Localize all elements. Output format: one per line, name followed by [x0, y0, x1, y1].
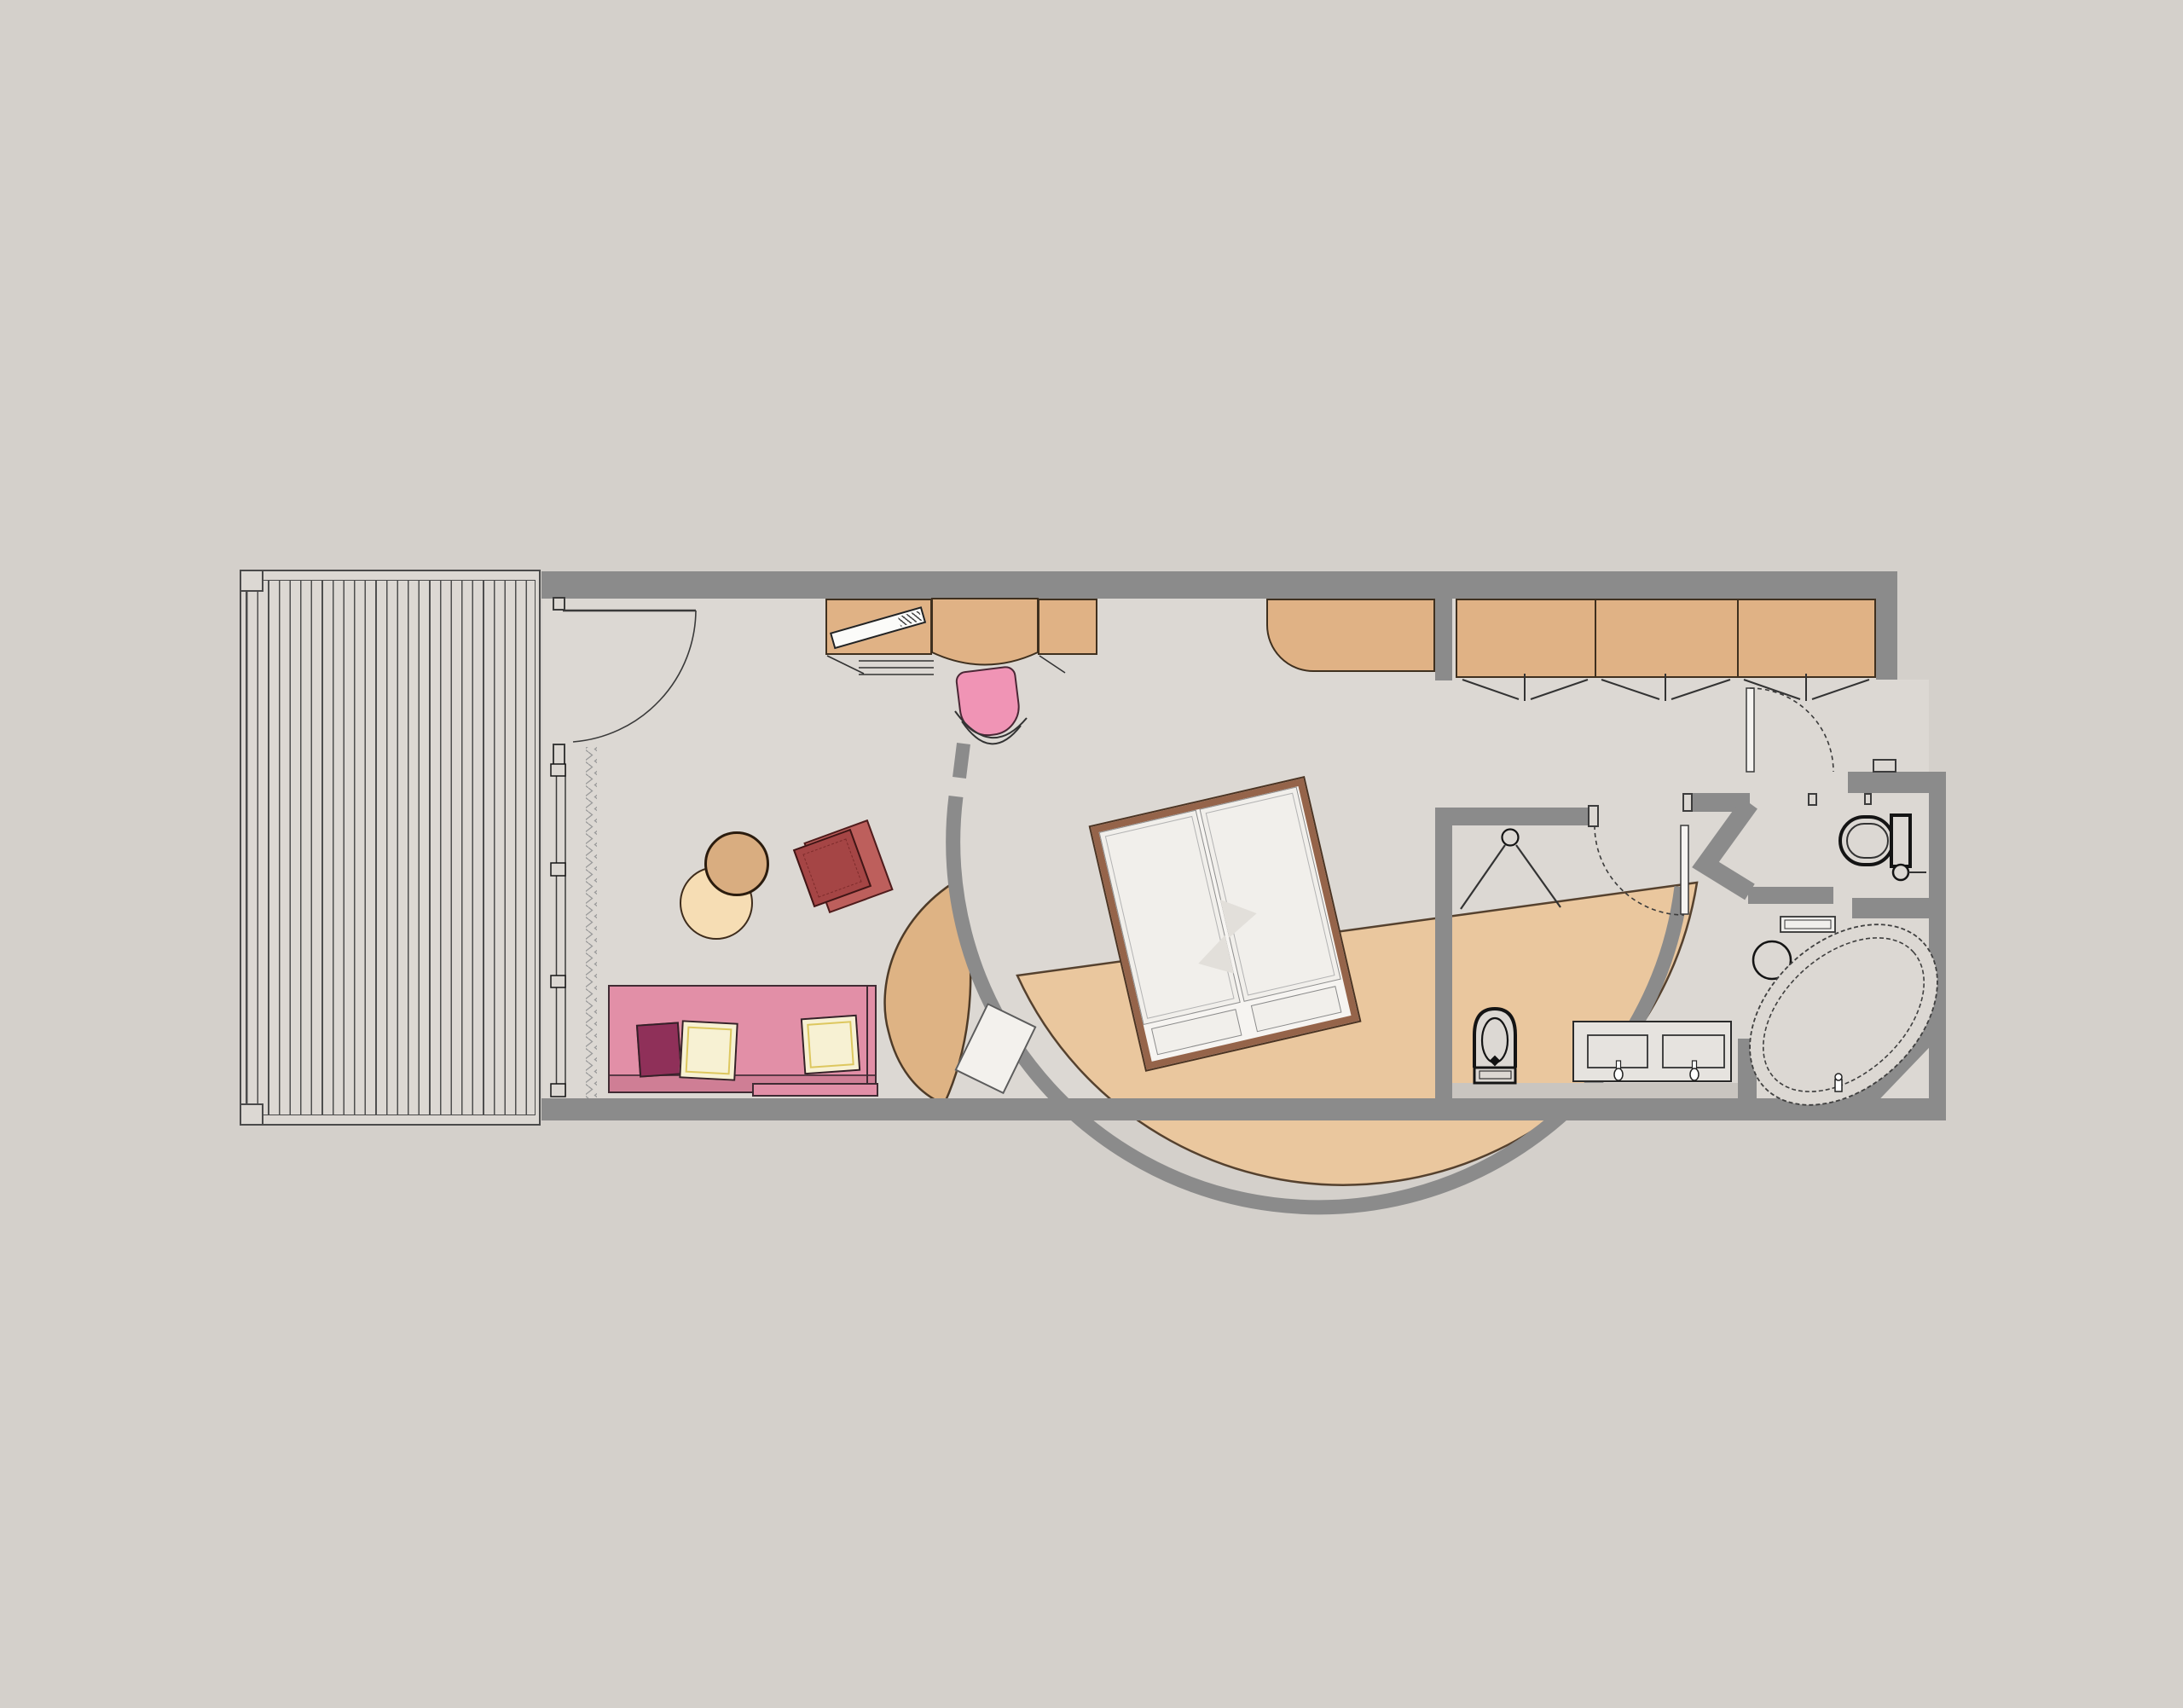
entry-jamb-bottom: [553, 744, 565, 766]
terrace-deck: [246, 580, 536, 1115]
wardrobe-divider-1: [1595, 600, 1596, 676]
cushion-cream-2: [801, 1015, 860, 1074]
floor-plan-canvas: [0, 0, 2183, 1708]
wall-top: [541, 571, 1897, 599]
wall-wc-top: [1848, 772, 1929, 793]
wall-lobby: [1693, 793, 1750, 812]
bath-door-jamb: [1588, 805, 1599, 827]
wall-right: [1929, 772, 1946, 1120]
wall-right-upper: [1876, 571, 1897, 680]
sofa-extension: [752, 1083, 878, 1097]
wc-wall-tick-2: [1864, 793, 1872, 805]
deck-post-top-left: [240, 570, 263, 592]
wall-bathroom-left: [1435, 808, 1452, 1098]
wall-bottom: [541, 1098, 1946, 1120]
wardrobe-divider-2: [1737, 600, 1739, 676]
wall-wc-bottom-right: [1852, 898, 1929, 918]
minibar-cabinet: [1266, 599, 1435, 672]
wc-wall-tick-1: [1808, 793, 1817, 806]
entry-jamb-top: [553, 597, 565, 611]
pouf-tan: [704, 831, 769, 896]
sofa-side-panel: [866, 987, 868, 1091]
wardrobe: [1456, 599, 1876, 678]
wc-niche: [1873, 759, 1896, 773]
tv-stand-hatch: [898, 611, 922, 627]
desk-right-unit: [1038, 599, 1097, 655]
cushion-cream-1: [679, 1020, 738, 1080]
wall-vanity-stub: [1738, 1039, 1757, 1098]
deck-post-bottom-left: [240, 1103, 263, 1126]
wall-wc-bottom-left: [1748, 887, 1833, 904]
wc-floor-extension: [1897, 680, 1929, 1098]
lobby-wall-jamb: [1682, 793, 1693, 812]
cushion-maroon: [636, 1022, 682, 1077]
wall-bathroom-top: [1437, 808, 1589, 825]
wall-stub-minibar: [1435, 588, 1452, 680]
vanity-toe-strip: [1452, 1083, 1738, 1098]
